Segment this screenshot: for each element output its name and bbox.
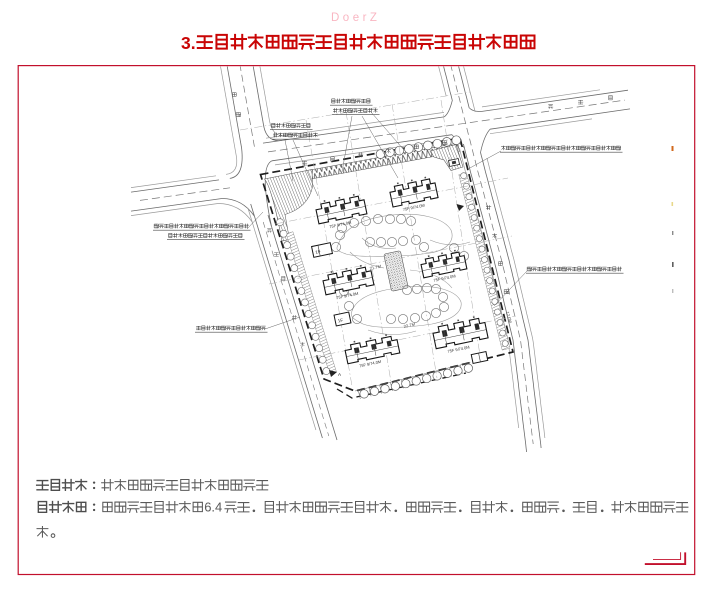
svg-text:75F 9/74.0M: 75F 9/74.0M	[359, 359, 382, 368]
svg-text:6.4: 6.4	[204, 500, 222, 515]
svg-text:3.: 3.	[181, 33, 196, 53]
svg-text:75F 9/74.0M: 75F 9/74.0M	[402, 203, 425, 212]
svg-text:A: A	[338, 372, 341, 377]
svg-text:22.7M: 22.7M	[403, 322, 416, 329]
svg-text:75F 9/74.0M: 75F 9/74.0M	[329, 220, 352, 229]
svg-text:12.0M: 12.0M	[505, 311, 513, 324]
svg-text:21.7M: 21.7M	[369, 264, 382, 271]
svg-text:75F 9/74.0M: 75F 9/74.0M	[433, 273, 456, 282]
svg-text:75F 9/74.0M: 75F 9/74.0M	[447, 344, 470, 353]
svg-text:DoerZ: DoerZ	[331, 12, 380, 24]
